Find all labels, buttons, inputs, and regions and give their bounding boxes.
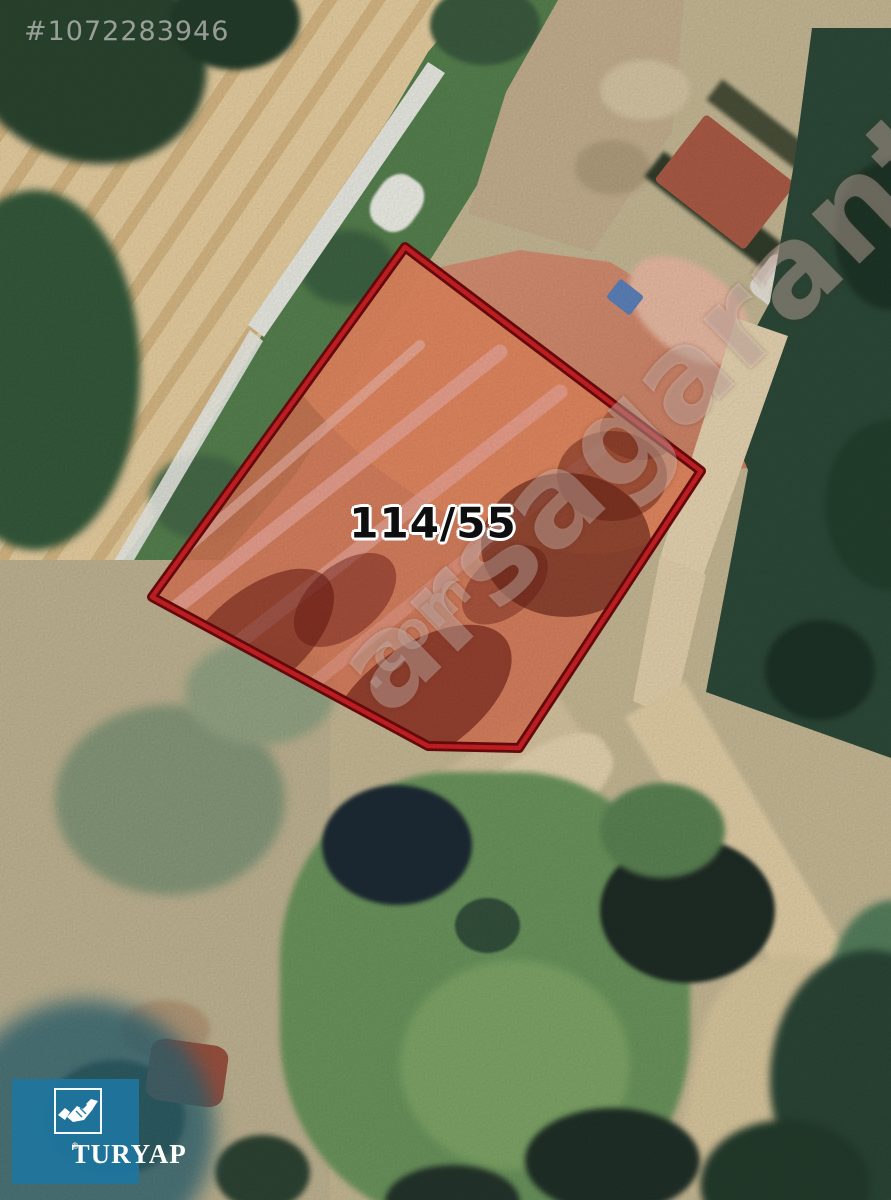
- turyap-logo: TURYAP®: [12, 1079, 139, 1184]
- parcel-number-label: 114/55: [349, 499, 516, 548]
- logo-brand-text: TURYAP: [72, 1139, 187, 1170]
- satellite-photo: arsagaranti.com 114/55 #1072283946 TURYA…: [0, 0, 891, 1200]
- handshake-icon: [54, 1088, 102, 1134]
- listing-id: #1072283946: [24, 16, 229, 47]
- logo-wordmark: TURYAP®: [12, 1139, 139, 1170]
